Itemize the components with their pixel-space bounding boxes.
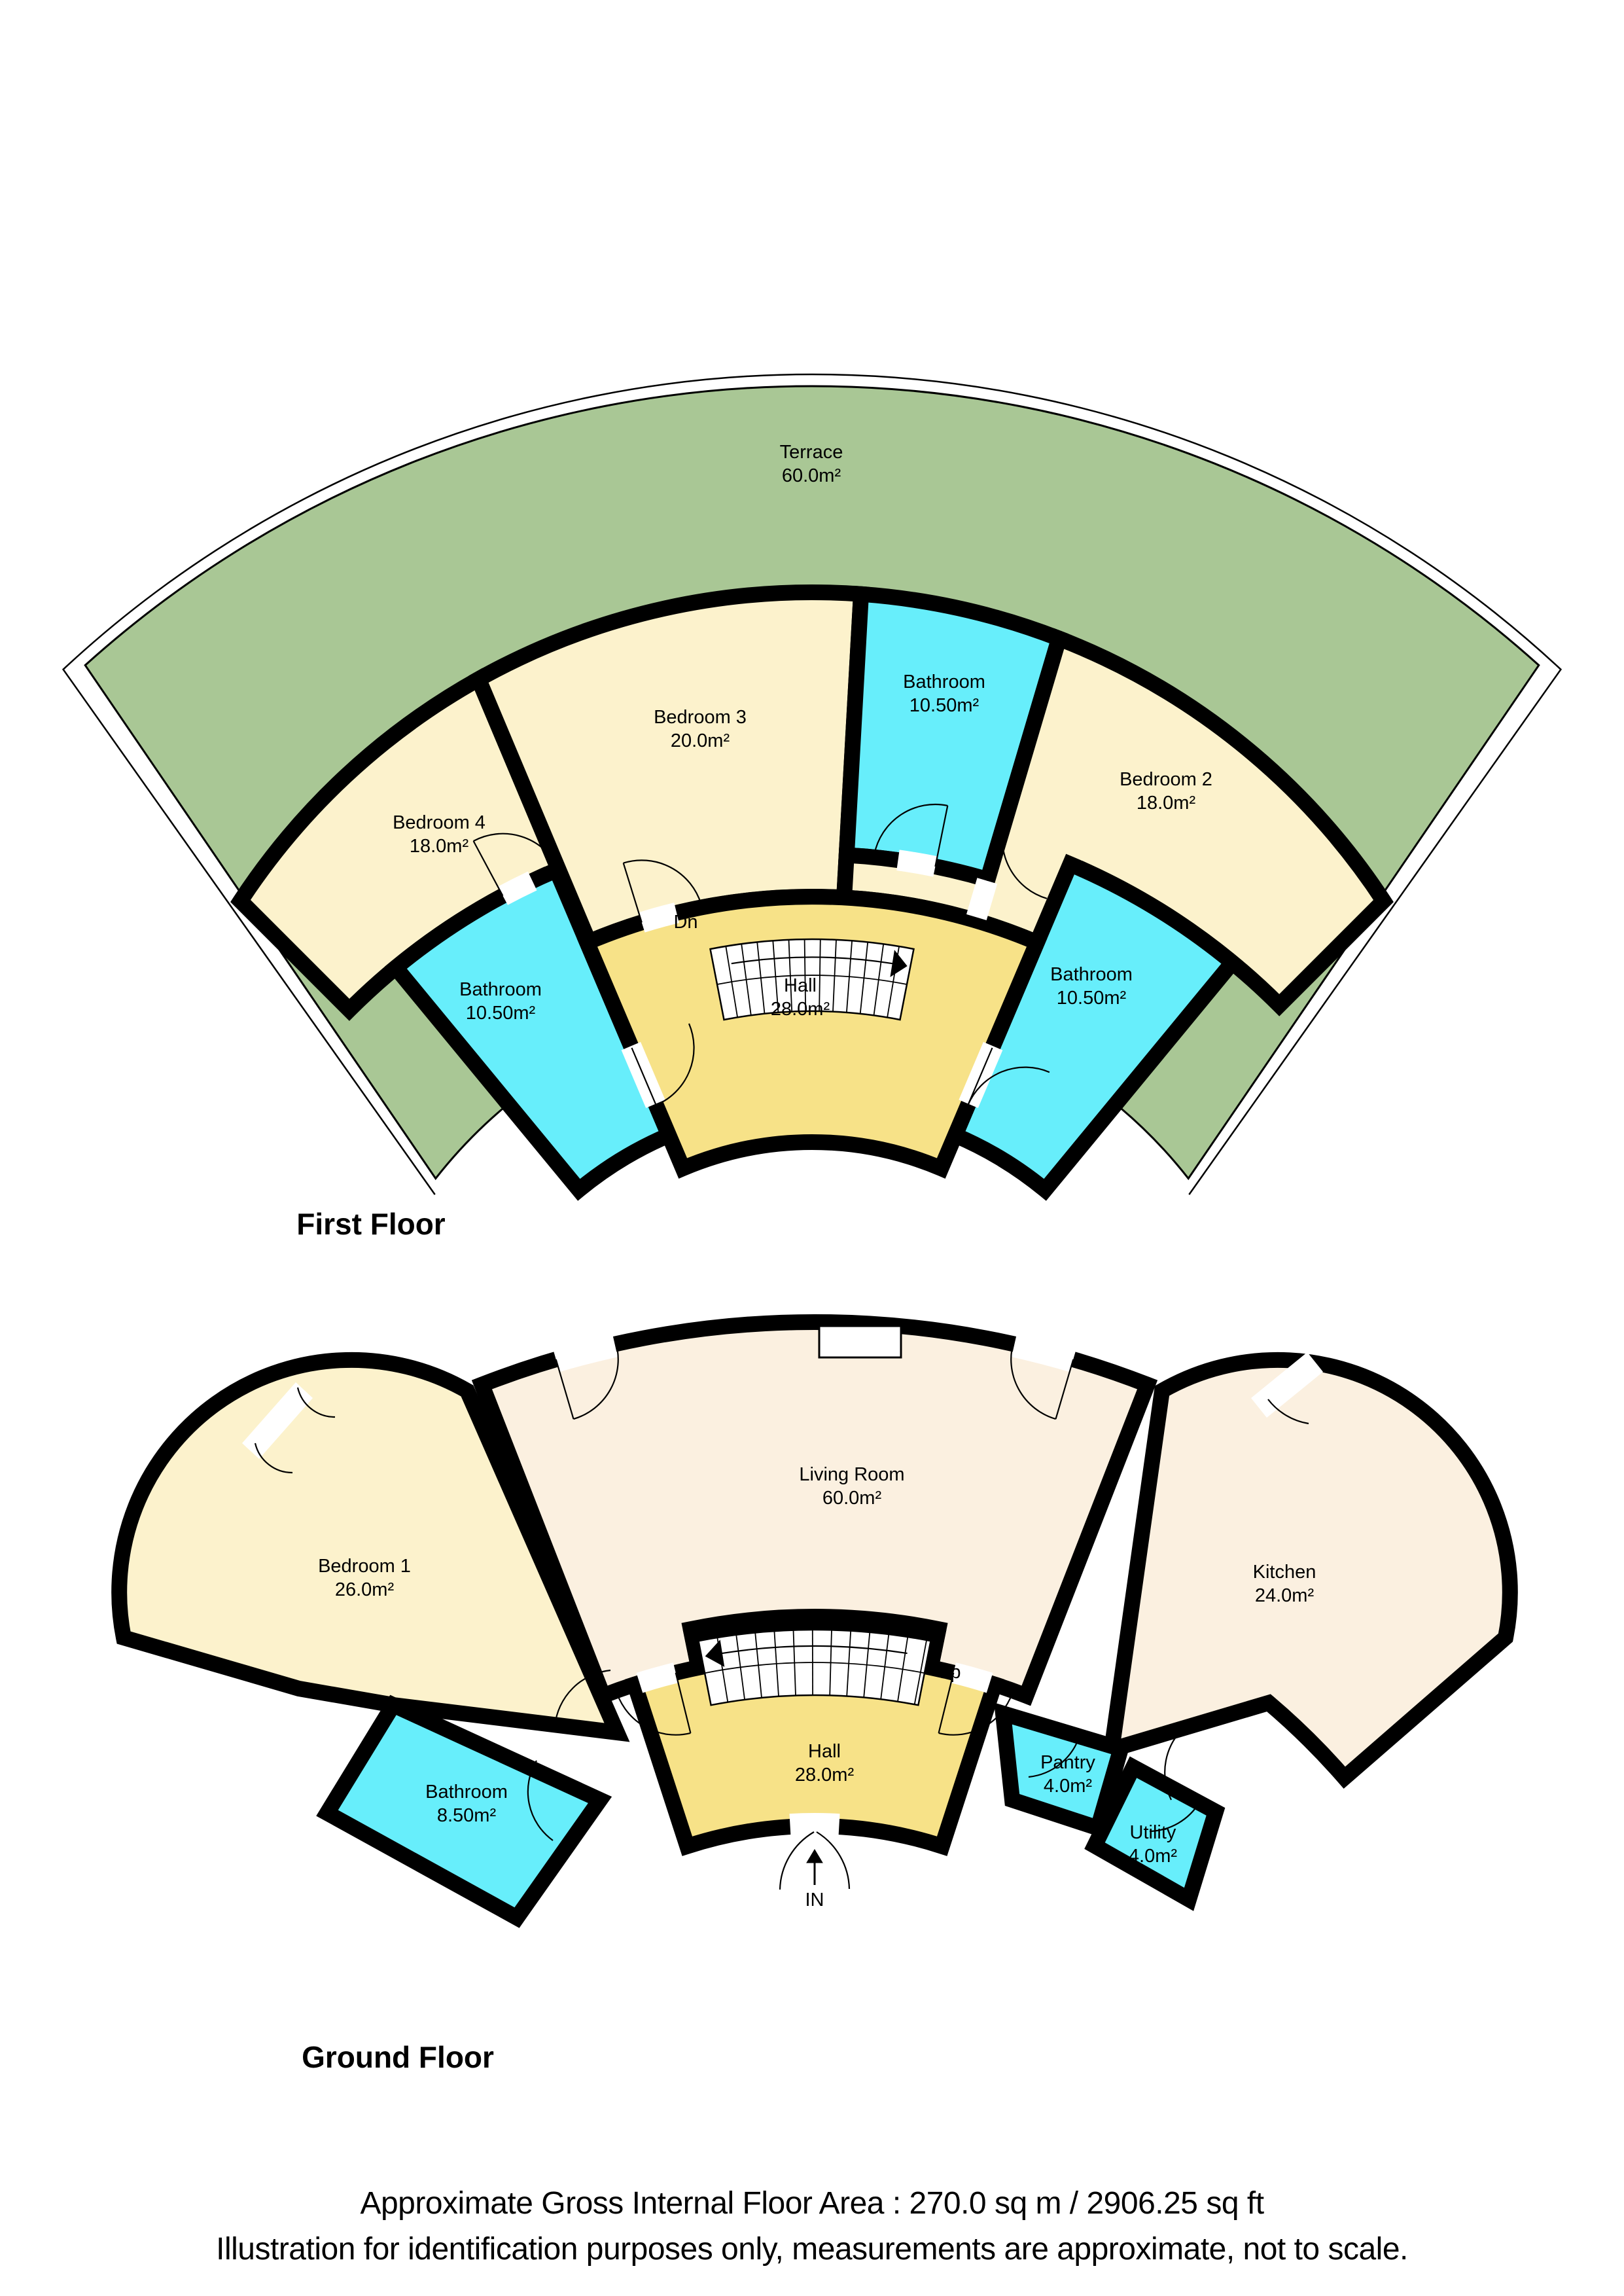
entrance-arrow-head (807, 1850, 822, 1863)
living-room-area: 60.0m² (822, 1488, 882, 1509)
living-room-label: Living Room (799, 1464, 904, 1485)
footer: Approximate Gross Internal Floor Area : … (216, 2186, 1408, 2267)
bedroom1-label: Bedroom 1 (318, 1556, 411, 1577)
hall-ff-area: 28.0m² (771, 999, 830, 1020)
bedroom3-area: 20.0m² (671, 730, 730, 751)
bedroom4-area: 18.0m² (410, 836, 469, 857)
bathroom-mid-label: Bathroom (903, 672, 985, 692)
bathroom-gf-label: Bathroom (425, 1782, 508, 1803)
hall-gf-label: Hall (808, 1741, 841, 1762)
bathroom-left-area: 10.50m² (466, 1003, 536, 1024)
bathroom-gf-area: 8.50m² (437, 1805, 497, 1826)
pantry-label: Pantry (1040, 1752, 1095, 1773)
footer-area-line: Approximate Gross Internal Floor Area : … (360, 2186, 1263, 2221)
entrance-gap (790, 1813, 840, 1840)
bedroom2-area: 18.0m² (1137, 793, 1196, 814)
bedroom3-label: Bedroom 3 (654, 707, 747, 728)
terrace-area: 60.0m² (782, 465, 841, 486)
window-bay-living-room (819, 1326, 901, 1357)
entrance-door-right-arc (817, 1832, 849, 1889)
kitchen-area: 24.0m² (1255, 1585, 1315, 1606)
bedroom4-label: Bedroom 4 (393, 812, 485, 833)
terrace-label: Terrace (780, 442, 843, 463)
gf-stairs-body (699, 1630, 931, 1705)
floorplan-page: Terrace 60.0m² Bedroom 3 20.0m² Bathroom… (0, 0, 1624, 2296)
entrance-in-label: IN (805, 1890, 824, 1910)
bathroom-left-label: Bathroom (459, 979, 542, 1000)
bathroom-right-label: Bathroom (1050, 964, 1133, 985)
pantry-area: 4.0m² (1044, 1776, 1092, 1797)
footer-disclaimer-line: Illustration for identification purposes… (216, 2232, 1408, 2267)
first-floor-title: First Floor (296, 1207, 446, 1241)
bathroom-mid-area: 10.50m² (909, 695, 980, 716)
utility-label: Utility (1130, 1822, 1176, 1843)
ground-floor-title: Ground Floor (302, 2040, 494, 2074)
hall-ff-label: Hall (784, 975, 817, 996)
bedroom1-area: 26.0m² (335, 1579, 395, 1600)
utility-area: 4.0m² (1129, 1846, 1177, 1867)
bedroom2-label: Bedroom 2 (1120, 769, 1212, 790)
floorplan-canvas: Terrace 60.0m² Bedroom 3 20.0m² Bathroom… (0, 0, 1624, 2296)
kitchen-label: Kitchen (1253, 1562, 1316, 1583)
bathroom-right-area: 10.50m² (1057, 988, 1127, 1009)
stairs-up-label: Up (936, 1662, 961, 1683)
hall-gf-area: 28.0m² (795, 1765, 855, 1785)
stairs-down-label: Dn (673, 912, 697, 933)
